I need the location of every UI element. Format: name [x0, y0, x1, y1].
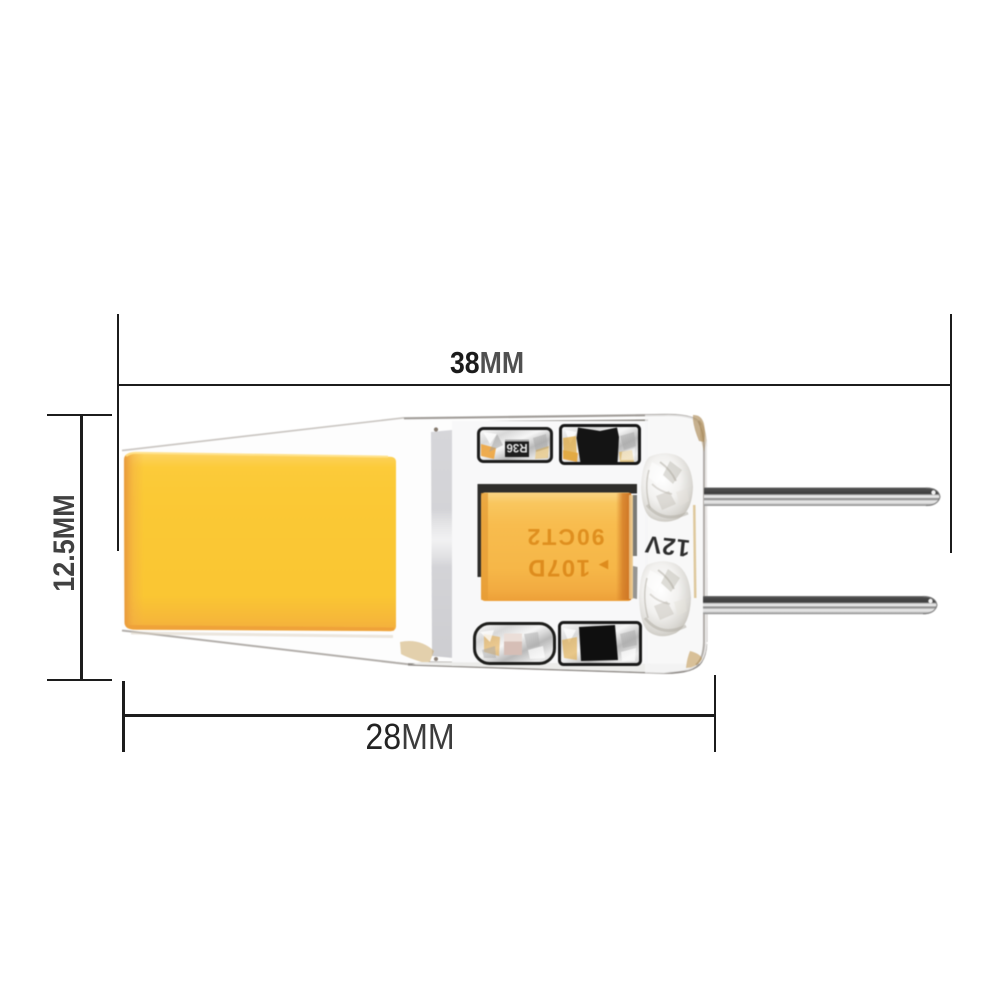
- svg-text:90CT2: 90CT2: [525, 524, 604, 550]
- svg-text:12V: 12V: [643, 530, 691, 562]
- svg-text:R36: R36: [506, 441, 527, 453]
